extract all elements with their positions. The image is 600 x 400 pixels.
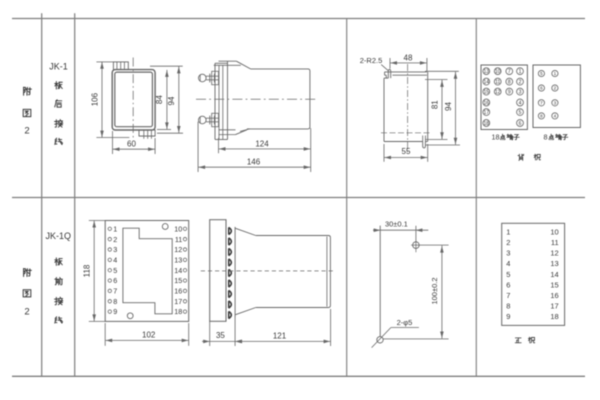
svg-text:16: 16 <box>550 291 558 300</box>
svg-text:12: 12 <box>174 245 182 254</box>
svg-text:10: 10 <box>174 224 182 233</box>
svg-text:10: 10 <box>550 227 558 236</box>
svg-text:2: 2 <box>24 126 29 137</box>
svg-text:2-R2.5: 2-R2.5 <box>360 56 383 65</box>
svg-text:JK-1: JK-1 <box>49 61 68 71</box>
svg-text:6: 6 <box>113 276 117 285</box>
svg-text:10: 10 <box>495 69 501 75</box>
svg-text:7: 7 <box>506 291 510 300</box>
svg-text:8: 8 <box>544 132 548 141</box>
svg-text:8: 8 <box>113 297 117 306</box>
svg-text:1: 1 <box>506 227 510 236</box>
svg-text:8: 8 <box>540 114 543 119</box>
svg-text:7: 7 <box>508 69 511 75</box>
svg-text:13: 13 <box>550 259 558 268</box>
svg-text:2: 2 <box>506 238 510 247</box>
svg-text:13: 13 <box>484 69 490 75</box>
svg-text:11: 11 <box>175 235 182 244</box>
svg-text:5: 5 <box>519 110 522 116</box>
svg-text:48: 48 <box>404 54 413 63</box>
svg-text:14: 14 <box>550 270 558 279</box>
svg-text:146: 146 <box>247 158 261 167</box>
svg-text:6: 6 <box>519 121 522 127</box>
svg-text:11: 11 <box>495 79 500 85</box>
svg-text:1: 1 <box>554 71 557 76</box>
svg-text:100±0.2: 100±0.2 <box>430 277 439 304</box>
svg-text:15: 15 <box>174 276 182 285</box>
svg-text:30±0.1: 30±0.1 <box>385 220 408 229</box>
svg-text:5: 5 <box>113 266 117 275</box>
svg-text:4: 4 <box>506 259 510 268</box>
svg-text:5: 5 <box>506 270 510 279</box>
svg-text:11: 11 <box>551 238 559 247</box>
svg-text:6: 6 <box>506 280 510 289</box>
svg-text:18: 18 <box>484 121 490 127</box>
svg-text:3: 3 <box>554 101 557 106</box>
svg-text:4: 4 <box>113 255 117 264</box>
svg-text:1: 1 <box>519 69 522 75</box>
svg-text:14: 14 <box>174 266 182 275</box>
svg-text:94: 94 <box>444 102 453 111</box>
svg-text:12: 12 <box>550 249 558 258</box>
svg-text:17: 17 <box>174 297 182 306</box>
svg-text:102: 102 <box>142 330 156 339</box>
svg-text:7: 7 <box>113 287 117 296</box>
svg-text:81: 81 <box>430 100 439 109</box>
svg-text:94: 94 <box>167 96 176 105</box>
svg-text:2: 2 <box>113 235 117 244</box>
svg-text:60: 60 <box>127 140 136 149</box>
svg-text:8: 8 <box>508 79 511 85</box>
svg-text:9: 9 <box>113 307 117 316</box>
svg-text:2: 2 <box>554 86 557 91</box>
svg-text:9: 9 <box>506 312 510 321</box>
svg-text:7: 7 <box>540 101 543 106</box>
svg-text:14: 14 <box>484 79 490 85</box>
svg-text:16: 16 <box>484 100 490 106</box>
svg-text:13: 13 <box>174 255 182 264</box>
svg-text:84: 84 <box>155 95 164 104</box>
svg-text:9: 9 <box>508 89 511 95</box>
svg-text:2-φ5: 2-φ5 <box>397 318 413 327</box>
svg-text:1: 1 <box>113 224 117 233</box>
svg-text:106: 106 <box>90 92 99 106</box>
svg-text:6: 6 <box>540 86 543 91</box>
svg-text:5: 5 <box>540 71 543 76</box>
svg-text:18: 18 <box>550 312 558 321</box>
svg-text:15: 15 <box>550 280 558 289</box>
svg-text:8: 8 <box>506 302 510 311</box>
svg-text:18: 18 <box>492 132 500 141</box>
svg-text:3: 3 <box>506 249 510 258</box>
svg-text:12: 12 <box>495 89 501 95</box>
svg-text:2: 2 <box>519 79 522 85</box>
svg-text:17: 17 <box>484 110 490 116</box>
svg-text:3: 3 <box>519 89 522 95</box>
svg-text:15: 15 <box>484 89 490 95</box>
svg-text:55: 55 <box>402 147 411 156</box>
svg-text:JK-1Q: JK-1Q <box>46 231 72 241</box>
svg-text:3: 3 <box>113 245 117 254</box>
svg-text:2: 2 <box>24 306 29 317</box>
svg-text:4: 4 <box>554 114 557 119</box>
svg-text:124: 124 <box>255 139 269 148</box>
svg-text:35: 35 <box>216 331 225 340</box>
svg-text:18: 18 <box>174 307 182 316</box>
svg-text:16: 16 <box>174 287 182 296</box>
svg-text:118: 118 <box>82 264 91 277</box>
svg-text:17: 17 <box>550 302 558 311</box>
svg-text:4: 4 <box>519 100 522 106</box>
svg-text:121: 121 <box>273 331 287 340</box>
